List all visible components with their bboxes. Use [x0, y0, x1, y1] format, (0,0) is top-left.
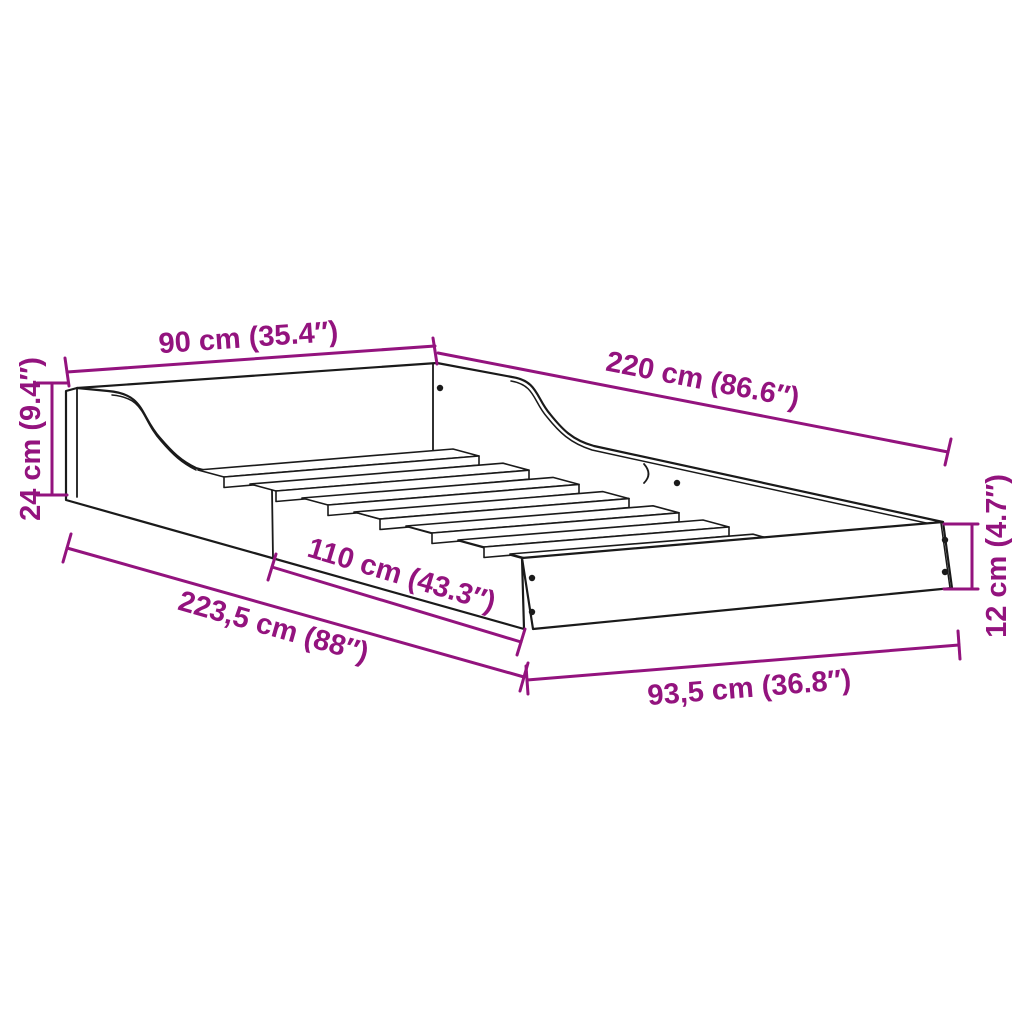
screw [942, 537, 948, 543]
diagram-canvas: 90 cm (35.4″) 220 cm (86.6″) 24 cm (9.4″… [0, 0, 1024, 1024]
dimension-label-head-height: 24 cm (9.4″) [15, 357, 47, 521]
dimension-foot-width: 93,5 cm (36.8″) [526, 631, 960, 712]
screw [529, 609, 535, 615]
screw [529, 575, 535, 581]
dimension-label-foot-width: 93,5 cm (36.8″) [646, 664, 852, 712]
near-panel-joint-line [272, 490, 273, 558]
dimension-head-height: 24 cm (9.4″) [15, 357, 67, 521]
dimension-label-foot-height: 12 cm (4.7″) [981, 474, 1013, 638]
screw [674, 480, 680, 486]
dimension-inner-length: 220 cm (86.6″) [438, 346, 951, 465]
far-rail-bracket-mark [644, 464, 649, 483]
dimension-foot-height: 12 cm (4.7″) [944, 474, 1013, 638]
screw [437, 385, 443, 391]
screw [942, 569, 948, 575]
bed-frame-dimension-diagram: 90 cm (35.4″) 220 cm (86.6″) 24 cm (9.4″… [0, 0, 1024, 1024]
dimension-label-outer-length: 223,5 cm (88″) [175, 585, 372, 669]
